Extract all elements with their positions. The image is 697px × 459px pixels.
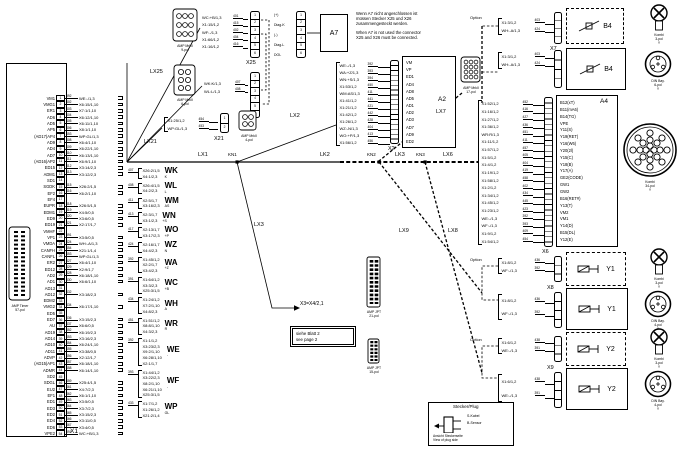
- a4-pin: VPE: [560, 122, 583, 126]
- amp17-label: AMP MrkII17-pol: [452, 86, 490, 94]
- signal-name: ED2: [12, 412, 56, 417]
- signal-name: AD10: [12, 342, 56, 347]
- wire-target: X3:15/2,3: [78, 317, 118, 322]
- y1-label: Y1: [607, 306, 616, 313]
- crimp-bracket-icon: [118, 191, 123, 195]
- a2-pin: AD7: [406, 126, 414, 130]
- group-target: X4:3/2,3: [143, 329, 160, 335]
- wire-number: 411: [65, 158, 78, 162]
- wire-number: 404: [368, 126, 378, 130]
- temp-sensor-icon: [578, 20, 600, 32]
- wire-number: 404: [233, 36, 243, 40]
- wire-target: X21:1/1,4: [78, 248, 118, 253]
- crimp-bracket-icon: [118, 419, 123, 423]
- wire-number: [65, 196, 78, 200]
- wire-line: [378, 91, 391, 95]
- group-label: WO +P: [165, 227, 179, 238]
- wire-line: [378, 70, 391, 74]
- a2-pin: ED1: [406, 75, 414, 79]
- crimp-bracket-icon: [118, 432, 123, 436]
- bus-label-kn3: KN3: [416, 153, 425, 158]
- wire-line: [545, 377, 555, 385]
- wire-number: 405: [523, 154, 533, 158]
- crimp-bracket-icon: [118, 210, 123, 214]
- signal-name: VPE2: [12, 431, 56, 436]
- wire-target: WL:L/1,3: [204, 89, 234, 94]
- wire-row: X1:36/1,2 436: [482, 123, 545, 131]
- wire-row: X1:56/1,2 456: [340, 139, 391, 146]
- wire-line: [533, 201, 545, 205]
- group-targets: X2:3/1,7X3:1/2,3: [143, 212, 158, 223]
- group-target: X2:1/1,7: [143, 361, 162, 367]
- group-label: WC +B: [165, 277, 178, 294]
- wire-line: [209, 119, 219, 123]
- a2-pin: AD1: [406, 104, 414, 108]
- kombi34-pictogram: [622, 122, 678, 183]
- wire-target: X1:6/1,2: [502, 340, 534, 345]
- amp-jpt-21pol-icon: [366, 256, 382, 308]
- harness-wire-groups: 407 X26:2/1,5X4:1/2,3 WK K 408 X26:4/1,5…: [128, 168, 180, 422]
- wire-line: [545, 62, 555, 67]
- wire-target: X3:15/2,3: [78, 412, 118, 417]
- wire-line: [533, 216, 545, 220]
- jpt15-label: AMP JPT15-pol: [356, 366, 392, 374]
- wire-number: 454: [523, 238, 533, 242]
- signal-name: EU2: [12, 387, 56, 392]
- wire-group: 413 X2:3/1,7X3:1/2,3 WN +S: [128, 212, 180, 223]
- wire-line: [533, 102, 545, 106]
- wire-target: X3:4/0,5: [78, 425, 118, 430]
- wire-number: 393: [368, 70, 378, 74]
- jpt21-label: AMP JPT21-pol: [356, 310, 392, 318]
- a2-label: A2: [438, 96, 446, 103]
- x6-connector: [544, 97, 553, 247]
- group-target: X3:4/2,3: [143, 268, 160, 274]
- wire-target: WE:-/1,3: [502, 348, 534, 353]
- solenoid-valve-icon: [577, 264, 603, 274]
- signal-name: VMG1: [12, 102, 56, 107]
- a4-pin: VM2: [560, 211, 583, 215]
- bus-label-lx25: LX25: [150, 69, 163, 75]
- wire-target: X1:26/1,2: [340, 119, 367, 124]
- group-label: WL L: [165, 183, 177, 194]
- crimp-bracket-icon: [118, 413, 123, 417]
- wire-target: X1:16/1,2: [482, 109, 522, 114]
- group-target: X4:1/2,3: [143, 174, 160, 180]
- wire-target: X2:9/1,7: [78, 267, 118, 272]
- a2-wires: WE:-/1,3 392 WA:+Z/1,3 393 WN:+S/1,3 394…: [336, 62, 390, 146]
- group-wire-number: 451: [128, 319, 138, 323]
- wire-target: WF:-/1,3: [482, 223, 522, 228]
- group-label: WH A: [165, 297, 178, 314]
- a4-pin: Y11(S): [560, 128, 583, 132]
- wire-line: [545, 340, 555, 345]
- wire-target: WE:-/1,3: [340, 63, 367, 68]
- wire-number: 450: [368, 84, 378, 88]
- crimp-bracket-icon: [118, 248, 123, 252]
- signal-name: AD1: [12, 279, 56, 284]
- wire-number: 419: [523, 169, 533, 173]
- wire-target: WC:+B/1,3: [78, 431, 118, 436]
- wire-target: X1:3/1,2: [502, 20, 534, 25]
- crimp-bracket-icon: [118, 425, 123, 429]
- wire-number: 438: [535, 378, 545, 382]
- group-bracket-icon: [138, 318, 142, 335]
- a2-pin: VM: [406, 61, 414, 65]
- wire-number: 424: [65, 241, 78, 245]
- wire-row: X1:23/1,2 423: [482, 207, 545, 215]
- y2-option-connector: [554, 336, 562, 362]
- wire-target: X2:12/1,7: [78, 355, 118, 360]
- wire-number: 392: [523, 215, 533, 219]
- wire-target: X1:27/1,2: [482, 117, 522, 122]
- crimp-bracket-icon: [118, 122, 123, 126]
- a4-pin: GE2(CODE): [560, 176, 583, 180]
- b4-option-box: B4: [566, 8, 624, 44]
- wire-number: 428: [368, 119, 378, 123]
- solenoid-valve-icon: [578, 304, 604, 314]
- wire-number: 438: [535, 339, 545, 343]
- wire-number: [65, 298, 78, 302]
- crimp-bracket-icon: [118, 160, 123, 164]
- signal-name: SGDK: [12, 184, 56, 189]
- wire-target: X6:18/1,10: [78, 273, 118, 278]
- group-bracket-icon: [138, 183, 142, 194]
- wire-target: WP:GL/1,3: [168, 126, 198, 131]
- group-wire-number: 424: [128, 243, 138, 247]
- wire-target: X1:56/1,2: [340, 140, 367, 145]
- wire-number: 391: [535, 347, 545, 351]
- signal-name: (AD17)AP4: [12, 134, 56, 139]
- group-label: WA +Z: [165, 257, 178, 274]
- wire-row: X1:19/1,2 419: [482, 169, 545, 177]
- wire-target: WE:-/1,3: [78, 96, 118, 101]
- crimp-bracket-icon: [118, 293, 123, 297]
- group-wire-number: 417: [128, 228, 138, 232]
- crimp-bracket-icon: [118, 267, 123, 271]
- a4-pin: Y18(B): [560, 163, 583, 167]
- wire-row: X1:3/1,2 403: [502, 52, 555, 61]
- wire-number: 451: [523, 131, 533, 135]
- wire-target: X6:18/1,10: [78, 361, 118, 366]
- wire-row: X1:54/1,2 454: [482, 237, 545, 245]
- wire-row: X1:15/1,2 415: [202, 21, 248, 28]
- group-wire-number: 433: [128, 402, 138, 406]
- crimp-bracket-icon: [118, 381, 123, 385]
- wire-target: X6:9/1,10: [78, 159, 118, 164]
- wire-number: 401: [233, 15, 243, 19]
- wire-row: X1:45/1,2 445: [482, 199, 545, 207]
- wire-target: X4:5/0,5: [78, 210, 118, 215]
- signal-name: ED12: [12, 267, 56, 272]
- wire-target: WZ:-N/1,3: [340, 126, 367, 131]
- wire-number: [65, 228, 78, 232]
- wire-line: [209, 126, 219, 130]
- wire-row: WH:-A/1,3 424: [502, 61, 555, 70]
- signal-name: AD5: [12, 121, 56, 126]
- crimp-bracket-icon: [118, 331, 123, 335]
- signal-name: ED5: [12, 311, 56, 316]
- wire-target: X3:16/2,3: [78, 336, 118, 341]
- diag-label: DOL: [274, 53, 285, 57]
- signal-name: AD14: [12, 336, 56, 341]
- din-bay-6pol-icon: [644, 50, 672, 78]
- wire-target: WA:+Z/1,3: [340, 70, 367, 75]
- crimp-bracket-icon: [118, 280, 123, 284]
- wire-target: X1:21/1,2: [340, 105, 367, 110]
- x21-connector: 12: [220, 113, 229, 133]
- a7-label: A7: [330, 30, 339, 37]
- wire-target: X1:19/1,2: [482, 170, 522, 175]
- wire-line: [378, 105, 391, 109]
- amp6-label: AMP MrkII6-pol: [164, 98, 206, 106]
- wire-group: 408 X26:4/1,5X4:2/2,3 WL L: [128, 183, 180, 194]
- x25-label: X25: [246, 60, 256, 66]
- wire-row: X1:3/1,2 403: [502, 18, 555, 27]
- x2-connector: [390, 60, 399, 144]
- group-target: X4:4/2,3: [143, 248, 160, 254]
- wire-number: [65, 310, 78, 314]
- wire-target: X1:54/1,2: [482, 239, 522, 244]
- x9-label: X9: [547, 365, 554, 371]
- wire-row: X1:5/1,2 405: [482, 153, 545, 161]
- group-label: WE -: [167, 338, 180, 366]
- wire-target: X6:15/1,10: [78, 102, 118, 107]
- bus-label-lx1: LX1: [198, 152, 208, 158]
- pin-number: 54: [56, 430, 65, 436]
- a4-pin: B16(RET#): [560, 197, 583, 201]
- wire-target: X1:41/1,2: [340, 98, 367, 103]
- group-targets: X1:1/1,2X3:23/2,3X9:2/1,10X6:28/1,10X2:1…: [143, 338, 162, 366]
- a4-pin: B11(mA6): [560, 108, 583, 112]
- wire-line: [245, 89, 248, 93]
- bus-label-kn1: KN1: [228, 153, 237, 158]
- wire-number: 404: [65, 114, 78, 118]
- bus-label-lx9: LX9: [399, 228, 409, 234]
- group-target: X4:2/2,3: [143, 188, 160, 194]
- signal-name: ADVP: [12, 355, 56, 360]
- amp-mrkii-6pol-icon: [172, 64, 198, 96]
- y2-box: Y2: [566, 368, 628, 410]
- kombi3-label-1: Kombi3-polY: [644, 33, 674, 45]
- crimp-bracket-icon: [118, 356, 123, 360]
- x1-pin-row: VPE2 54 391 WC:+B/1,3: [12, 430, 126, 436]
- legend-wire-labels: S-KabelB-Sensor: [467, 414, 482, 425]
- wire-number: 453: [199, 125, 209, 129]
- wire-target: X3:14/2,3: [78, 165, 118, 170]
- legend-caption: Ansicht SteckerseiteView of plug side: [433, 435, 463, 443]
- wire-target: X1:66/1,2: [202, 37, 232, 42]
- wire-number: 452: [65, 329, 78, 333]
- signal-name: EDM2: [12, 298, 56, 303]
- plug-symbol-icon: [433, 413, 463, 433]
- wire-line: [533, 185, 545, 189]
- wire-line: [533, 231, 545, 235]
- wire-number: 459: [65, 380, 78, 384]
- signal-name: ED4: [12, 418, 56, 423]
- wire-row: X1:16/1,2 416: [202, 43, 248, 50]
- din-bay-4pol-icon: [644, 290, 672, 318]
- wire-target: WN:+S/1,3: [340, 77, 367, 82]
- wire-target: X1:3/1,2: [502, 54, 534, 59]
- a4-pin: B14(TG): [560, 115, 583, 119]
- crimp-bracket-icon: [118, 324, 123, 328]
- signal-name: AD6: [12, 115, 56, 120]
- wire-group: 393 X1:44/1,2X3:22/2,3X8:2/1,10X6:21/1,1…: [128, 370, 180, 398]
- wire-row: X1:8/1,2 436: [502, 258, 555, 266]
- signal-name: VP1: [12, 235, 56, 240]
- wire-target: X1:58/1,2: [482, 178, 522, 183]
- wire-number: 424: [535, 28, 545, 32]
- a2-pins: VMVPED1AD4AD8AD5AD1AD2AD3AD7AD9ED2: [406, 61, 414, 144]
- b4-box: B4: [566, 48, 626, 90]
- group-targets: X2:5/1,7X3:16/2,3: [143, 198, 160, 209]
- wire-line: [533, 208, 545, 212]
- a4-pin: Y15(C): [560, 156, 583, 160]
- signal-name: SD2: [12, 374, 56, 379]
- wire-number: 445: [523, 200, 533, 204]
- wire-row: X1:21/1,2 421: [340, 104, 391, 111]
- wire-number: 410: [65, 152, 78, 156]
- group-target: X3:1/2,3: [143, 218, 158, 224]
- wire-line: [533, 170, 545, 174]
- a4-pin: VM1: [560, 217, 583, 221]
- crimp-bracket-icon: [118, 115, 123, 119]
- bus-label-kn2: KN2: [367, 153, 376, 158]
- wire-target: X6:1/1,10: [78, 393, 118, 398]
- x7-connector: [554, 12, 562, 44]
- wire-number: 421: [368, 105, 378, 109]
- b4-wires: X1:3/1,2 403 WH:-A/1,3 424: [498, 52, 554, 69]
- temp-sensor-icon: [579, 63, 601, 75]
- bus-label-lk3: LK3: [395, 152, 405, 158]
- signal-name: AD9: [12, 140, 56, 145]
- wire-number: 391: [65, 234, 78, 238]
- wire-number: 393: [523, 223, 533, 227]
- wire-number: 429: [65, 266, 78, 270]
- wire-line: [545, 391, 555, 399]
- wire-number: 463: [65, 399, 78, 403]
- wire-target: X6:6/0,5: [78, 323, 118, 328]
- wire-target: X1:16/1,2: [202, 44, 232, 49]
- wire-target: WF:-/1,3: [202, 30, 232, 35]
- kombi-3pol-icon: [648, 4, 670, 32]
- wire-number: 424: [535, 62, 545, 66]
- wire-line: [378, 126, 391, 130]
- crimp-bracket-icon: [118, 242, 123, 246]
- wire-line: [545, 268, 555, 273]
- wire-line: [533, 109, 545, 113]
- wire-number: 403: [535, 19, 545, 23]
- a4-label: A4: [600, 98, 608, 105]
- wire-number: 415: [65, 184, 78, 188]
- wire-number: 409: [523, 230, 533, 234]
- wire-group: 434 X1:24/1,2X7:2/1,10X4:8/2,3 WH A: [128, 297, 180, 314]
- wire-number: 408: [235, 88, 245, 92]
- wire-line: [545, 28, 555, 33]
- wire-line: [533, 224, 545, 228]
- wire-number: 416: [233, 43, 243, 47]
- wire-number: 411: [368, 91, 378, 95]
- crimp-bracket-icon: [118, 406, 123, 410]
- wire-line: [378, 119, 391, 123]
- crimp-bracket-icon: [118, 236, 123, 240]
- crimp-bracket-icon: [118, 109, 123, 113]
- group-targets: X26:4/1,5X4:2/2,3: [143, 183, 160, 194]
- wire-target: X1:11/1,2: [482, 139, 522, 144]
- wire-target: X1:6/1,2: [502, 379, 534, 384]
- crimp-bracket-icon: [118, 362, 123, 366]
- wire-line: [545, 20, 555, 25]
- wire-line: [243, 30, 248, 34]
- wire-number: 416: [523, 108, 533, 112]
- signal-name: EF4: [12, 197, 56, 202]
- wire-number: 436: [523, 124, 533, 128]
- wire-row: X1:6/1,2 438: [502, 338, 555, 346]
- wire-target: X6:4/1,10: [78, 140, 118, 145]
- a4-pin: Y14(D): [560, 224, 583, 228]
- wire-row: WE:-/1,3 391: [502, 346, 555, 354]
- plug-legend: Stecker/Plug S-KabelB-Sensor Ansicht Ste…: [428, 402, 514, 446]
- signal-name: EUPR: [12, 203, 56, 208]
- wire-line: [545, 260, 555, 265]
- wire-target: WK:K/1,3: [204, 81, 234, 86]
- x26-wires: WK:K/1,3 407 WL:L/1,3 408: [204, 80, 248, 95]
- x1-pin-list: VM1 1 392 WE:-/1,3 VMG1 2 402 X6:15/1,10…: [12, 95, 126, 437]
- solenoid-valve-icon: [577, 344, 603, 354]
- diag-label: (-): [274, 33, 285, 37]
- wire-number: 403: [65, 108, 78, 112]
- wire-number: 457: [523, 147, 533, 151]
- a4-pin: B15(DL): [560, 231, 583, 235]
- wire-row: X1:16/1,2 416: [482, 108, 545, 116]
- group-wire-number: 411: [128, 199, 138, 203]
- crimp-bracket-icon: [118, 153, 123, 157]
- wire-target: X26:2/1,5: [78, 184, 118, 189]
- wire-line: [378, 133, 391, 137]
- amp9-pictogram: [172, 8, 198, 47]
- wire-target: X3:11/0,5: [78, 418, 118, 423]
- wire-number: 411: [523, 139, 533, 143]
- signal-name: ADM1: [12, 172, 56, 177]
- wire-target: WP:GL/1,3: [78, 134, 118, 139]
- signal-name: (AD16)AP2: [12, 159, 56, 164]
- wire-target: X25:4/1,5: [78, 380, 118, 385]
- wire-target: WH:-A/1,3: [78, 241, 118, 246]
- group-bracket-icon: [138, 168, 142, 179]
- bus-label-lx21: LX21: [144, 139, 157, 145]
- wire-target: X1:52/1,2: [482, 101, 522, 106]
- wire-number: 456: [65, 355, 78, 359]
- wire-row: WH:-A/1,3 424: [502, 27, 555, 36]
- group-bracket-icon: [138, 277, 142, 294]
- crimp-bracket-icon: [118, 147, 123, 151]
- wire-number: 403: [535, 53, 545, 57]
- wire-target: X6:24/1,10: [78, 342, 118, 347]
- wire-group: 392 X1:1/1,2X3:23/2,3X9:2/1,10X6:28/1,10…: [128, 338, 180, 366]
- signal-name: ER2: [12, 260, 56, 265]
- wire-row: X1:41/1,2 441: [340, 97, 391, 104]
- wire-number: 391: [65, 431, 78, 435]
- group-label: WZ N: [165, 242, 177, 253]
- signal-name: CANFL: [12, 254, 56, 259]
- crimp-bracket-icon: [118, 166, 123, 170]
- group-targets: X26:2/1,5X4:1/2,3: [143, 168, 160, 179]
- wire-target: X1:25/1,2: [168, 118, 198, 123]
- wire-row: X1:6/1,2 438: [502, 374, 555, 388]
- signal-name: EDM1: [12, 210, 56, 215]
- b4-option-wires: X1:3/1,2 403 WH:-A/1,3 424: [498, 18, 554, 35]
